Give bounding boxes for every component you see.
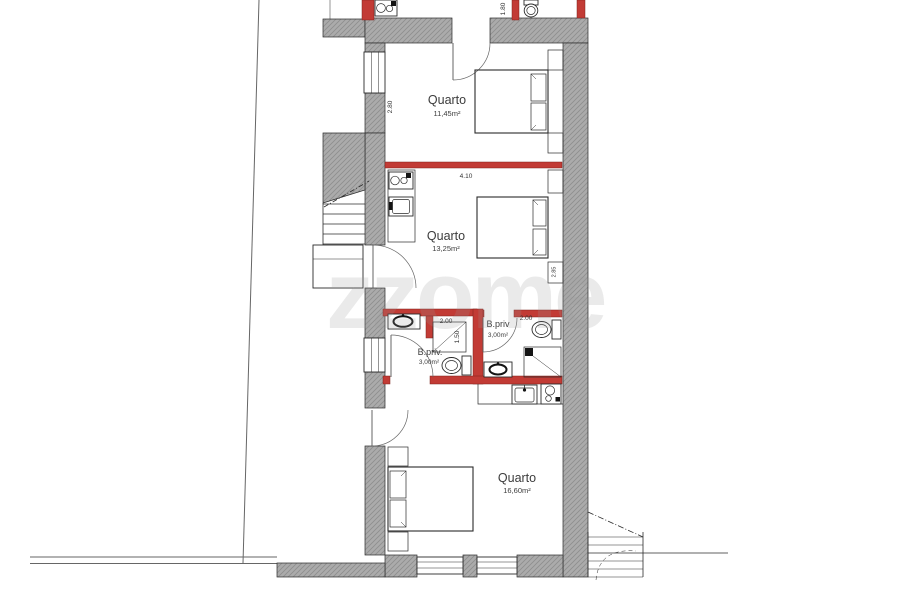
nightstand bbox=[548, 133, 563, 153]
nightstand bbox=[548, 50, 563, 70]
red-wall-segment bbox=[473, 309, 483, 384]
room-area-quarto2: 13,25m² bbox=[432, 244, 460, 253]
red-wall-segment bbox=[512, 0, 519, 20]
red-wall-segment bbox=[362, 0, 374, 20]
dim-bath-left-shower: 1.50 bbox=[454, 330, 461, 343]
wall-segment-mullion bbox=[463, 555, 477, 577]
room-label-bath-left: B.priv. bbox=[418, 347, 443, 357]
kitchenette-quarto2 bbox=[388, 170, 415, 242]
bed-quarto1 bbox=[475, 50, 563, 153]
sink-icon bbox=[389, 172, 413, 189]
red-wall-segment bbox=[385, 162, 562, 168]
washbasin-icon bbox=[388, 314, 420, 329]
dim-top-room-depth: 1.80 bbox=[500, 2, 507, 15]
wall-segment bbox=[365, 43, 385, 52]
dim-bath-left-width: 2.00 bbox=[440, 318, 453, 325]
room-label-quarto3: Quarto bbox=[498, 471, 536, 485]
wall-segment bbox=[517, 555, 563, 577]
window bbox=[364, 52, 385, 93]
room-area-bath-right: 3,00m² bbox=[488, 332, 509, 339]
room-area-quarto1: 11,45m² bbox=[434, 109, 461, 118]
wall-segment bbox=[365, 446, 385, 555]
wall-segment bbox=[365, 372, 385, 408]
floor-plan-image: Quarto 11,45m² Quarto 13,25m² Quarto 16,… bbox=[0, 0, 900, 597]
bed-quarto2 bbox=[477, 170, 563, 283]
wall-segment-right bbox=[563, 43, 588, 577]
wall-segment bbox=[365, 18, 452, 43]
dim-quarto2-width: 4.10 bbox=[460, 173, 473, 180]
window-bottom bbox=[417, 557, 463, 574]
wall-segment bbox=[365, 133, 385, 245]
red-wall-segment bbox=[383, 376, 390, 384]
toilet-top-icon bbox=[524, 0, 538, 17]
room-label-quarto2: Quarto bbox=[427, 229, 465, 243]
wall-segment-stair-mass bbox=[323, 133, 365, 203]
room-area-quarto3: 16,60m² bbox=[503, 486, 531, 495]
quarto3-counter-fixtures bbox=[478, 384, 563, 404]
sink-unit-top-icon bbox=[375, 0, 397, 16]
door-quarto2 bbox=[373, 245, 416, 288]
appliance-icon bbox=[541, 384, 561, 404]
wall-segment bbox=[490, 18, 588, 43]
toilet-icon bbox=[442, 356, 471, 375]
appliance-icon bbox=[389, 197, 413, 216]
dim-quarto1-depth: 2.80 bbox=[387, 100, 394, 113]
wall-segment bbox=[365, 288, 385, 338]
red-wall-segment bbox=[577, 0, 585, 18]
gate-swing-dashed bbox=[596, 551, 636, 580]
dim-bath-right-width: 2.00 bbox=[520, 315, 533, 322]
wall-segment bbox=[323, 19, 365, 37]
stairs-right-exterior bbox=[588, 512, 643, 580]
plot-boundary-line bbox=[243, 0, 259, 563]
floor-plan-drawing: Quarto 11,45m² Quarto 13,25m² Quarto 16,… bbox=[0, 0, 900, 597]
labels: Quarto 11,45m² Quarto 13,25m² Quarto 16,… bbox=[387, 2, 558, 495]
window-bottom bbox=[477, 557, 517, 574]
toilet-icon bbox=[532, 320, 561, 339]
laundry-sink-icon bbox=[512, 385, 537, 404]
wall-segment bbox=[277, 563, 385, 577]
door-quarto3 bbox=[372, 410, 408, 446]
door-quarto1 bbox=[453, 43, 490, 80]
nightstand bbox=[388, 447, 408, 466]
room-label-bath-right: B.priv bbox=[486, 319, 510, 329]
wall-segment bbox=[365, 93, 385, 133]
washbasin-icon bbox=[484, 362, 512, 377]
shower-tray-icon bbox=[524, 347, 561, 377]
room-label-quarto1: Quarto bbox=[428, 93, 466, 107]
room-area-bath-left: 3,00m² bbox=[419, 359, 440, 366]
window bbox=[364, 338, 385, 372]
furniture bbox=[388, 50, 563, 551]
dim-quarto2-depth: 2.85 bbox=[552, 267, 558, 278]
bed-quarto3 bbox=[388, 447, 473, 551]
nightstand bbox=[388, 532, 408, 551]
nightstand bbox=[548, 170, 563, 193]
wall-segment bbox=[385, 555, 417, 577]
red-wall-segment bbox=[426, 316, 433, 338]
stair-landing bbox=[313, 245, 363, 288]
break-line bbox=[588, 512, 643, 537]
